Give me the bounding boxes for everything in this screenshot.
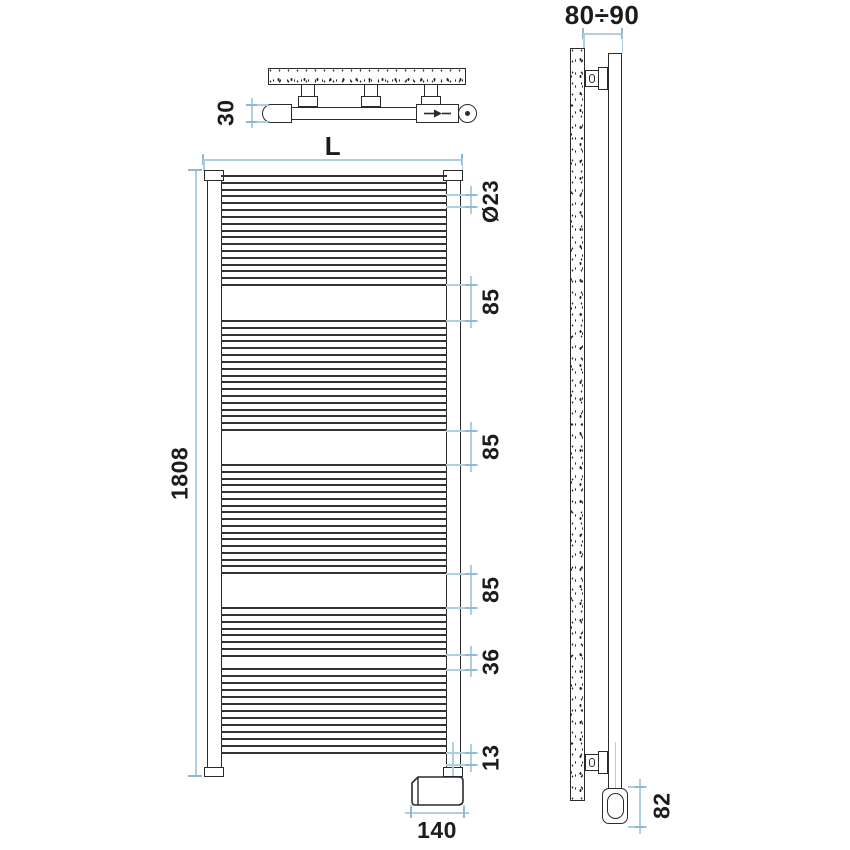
rung	[221, 277, 447, 279]
rung	[221, 209, 447, 211]
rung	[221, 710, 447, 712]
dim-extension-line	[622, 33, 624, 53]
rung	[221, 284, 447, 286]
rung	[221, 532, 447, 534]
rung	[221, 545, 447, 547]
rung	[221, 175, 447, 177]
dim-line-wall-distance	[583, 33, 622, 35]
dim-tick	[465, 607, 476, 609]
rung	[221, 511, 447, 513]
rung	[221, 628, 447, 630]
rung	[221, 752, 447, 754]
dim-line-element-width	[405, 812, 469, 814]
rung	[221, 354, 447, 356]
bracket-collar-bottom	[598, 751, 608, 774]
dim-label-gap: 85	[477, 423, 505, 471]
rung	[221, 375, 447, 377]
bracket-slot	[589, 74, 595, 83]
rung	[221, 731, 447, 733]
dim-tick	[463, 807, 465, 818]
rung	[221, 614, 447, 616]
rung	[221, 703, 447, 705]
dim-tick	[188, 169, 202, 171]
dim-line-bottom-offset	[470, 744, 472, 772]
rung	[221, 409, 447, 411]
rung	[221, 388, 447, 390]
rung	[221, 641, 447, 643]
rung	[221, 484, 447, 486]
rung	[221, 655, 447, 657]
rung	[221, 648, 447, 650]
dim-tick	[188, 775, 202, 777]
dim-label-element-height: 82	[648, 782, 676, 830]
rung	[221, 202, 447, 204]
valve-center-dot	[465, 111, 470, 116]
rung	[221, 257, 447, 259]
dim-label-element-width: 140	[412, 817, 462, 843]
rung	[221, 216, 447, 218]
dim-tick	[465, 430, 476, 432]
rung	[221, 518, 447, 520]
rung	[221, 498, 447, 500]
rung	[221, 505, 447, 507]
collector-tube-left	[207, 170, 222, 770]
rung	[221, 264, 447, 266]
rung	[221, 236, 447, 238]
bracket-collar-top	[598, 67, 608, 90]
rung	[221, 340, 447, 342]
rung	[221, 422, 447, 424]
rung	[221, 250, 447, 252]
rung	[221, 559, 447, 561]
rung	[221, 464, 447, 466]
dim-line-height	[195, 170, 197, 776]
dim-label-bottom-offset: 13	[477, 734, 505, 782]
rung	[221, 195, 447, 197]
rung	[221, 572, 447, 574]
rung	[221, 717, 447, 719]
rung	[221, 696, 447, 698]
dim-tick	[465, 764, 476, 766]
rung	[221, 738, 447, 740]
rung	[221, 607, 447, 609]
dim-tick	[465, 654, 476, 656]
rung	[221, 347, 447, 349]
rung	[221, 724, 447, 726]
dim-tick	[465, 573, 476, 575]
rung	[221, 270, 447, 272]
rung	[221, 334, 447, 336]
dim-label-height: 1808	[166, 424, 194, 522]
bracket-slot	[589, 758, 595, 767]
dim-tick	[465, 194, 476, 196]
rung	[221, 327, 447, 329]
rung	[221, 320, 447, 322]
wall-section-side	[570, 48, 585, 801]
element-centerline	[615, 742, 617, 788]
rung	[221, 361, 447, 363]
dim-label-gap: 85	[477, 566, 505, 614]
dim-label-diameter: Ø23	[477, 172, 505, 230]
dim-line-spacing	[470, 646, 472, 677]
rung	[221, 565, 447, 567]
rung	[221, 230, 447, 232]
dim-tick	[465, 320, 476, 322]
rung	[221, 182, 447, 184]
rung-field	[221, 0, 447, 850]
dim-tick	[634, 786, 645, 788]
rung	[221, 634, 447, 636]
heating-element-oval	[607, 793, 624, 819]
dim-tick	[465, 206, 476, 208]
rung	[221, 223, 447, 225]
dim-tick	[465, 669, 476, 671]
rung	[221, 491, 447, 493]
rung	[221, 689, 447, 691]
technical-drawing-canvas: 30 L 1808 Ø23	[0, 0, 850, 850]
dim-tick	[634, 826, 645, 828]
heating-element-front	[402, 770, 472, 815]
dim-line-diameter	[470, 186, 472, 214]
dim-label-wall-distance: 80÷90	[556, 1, 648, 29]
rung	[221, 243, 447, 245]
rung	[221, 189, 447, 191]
rung	[221, 471, 447, 473]
rung	[221, 429, 447, 431]
dim-label-gap: 85	[477, 278, 505, 326]
rung	[221, 368, 447, 370]
dim-tick	[465, 752, 476, 754]
tube-side-view	[608, 53, 622, 790]
rung	[221, 682, 447, 684]
rung	[221, 538, 447, 540]
rung	[221, 621, 447, 623]
rung	[221, 478, 447, 480]
rung	[221, 415, 447, 417]
rung	[221, 525, 447, 527]
rung	[221, 381, 447, 383]
dim-tick	[465, 464, 476, 466]
rung	[221, 745, 447, 747]
rung	[221, 668, 447, 670]
rung	[221, 552, 447, 554]
dim-tick	[465, 284, 476, 286]
dim-label-spacing: 36	[477, 638, 505, 686]
rung	[221, 402, 447, 404]
rung	[221, 395, 447, 397]
rung	[221, 675, 447, 677]
collector-tube-right	[446, 170, 461, 770]
dim-extension-line	[583, 33, 585, 48]
